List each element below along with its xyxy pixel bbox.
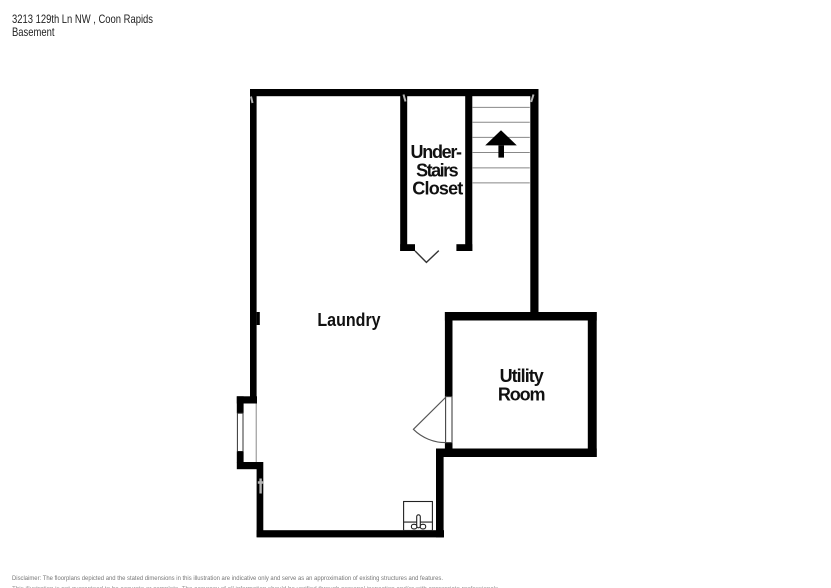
svg-text:Stairs: Stairs — [416, 160, 459, 180]
svg-text:3213 129th Ln NW , Coon Rapids: 3213 129th Ln NW , Coon Rapids — [12, 12, 153, 26]
svg-text:Closet: Closet — [412, 179, 463, 199]
svg-text:Room: Room — [498, 385, 546, 405]
svg-text:Utility: Utility — [500, 366, 544, 386]
svg-text:Under-: Under- — [411, 142, 463, 162]
svg-text:Disclaimer: The floorplans dep: Disclaimer: The floorplans depicted and … — [12, 575, 443, 582]
svg-text:Basement: Basement — [12, 25, 55, 39]
svg-text:Laundry: Laundry — [317, 310, 380, 330]
